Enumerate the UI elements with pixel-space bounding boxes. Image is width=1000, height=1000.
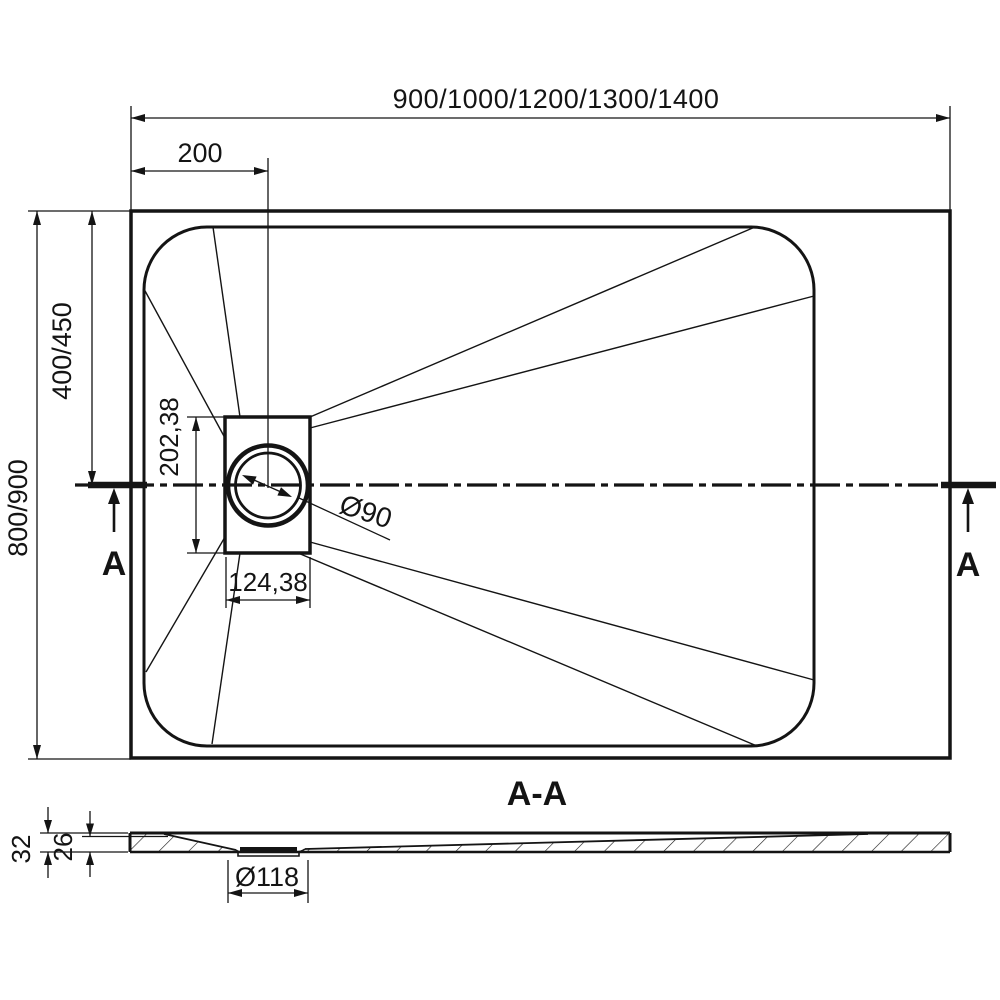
section-drain-plate bbox=[240, 847, 297, 851]
arrowhead bbox=[192, 417, 200, 431]
arrowhead bbox=[131, 114, 145, 122]
drawing-canvas: A A bbox=[0, 0, 1000, 1000]
slope-line bbox=[310, 227, 755, 417]
arrowhead bbox=[296, 596, 310, 604]
section-marker-label-right: A bbox=[956, 546, 981, 584]
arrowhead bbox=[44, 820, 52, 833]
arrowhead bbox=[242, 475, 257, 485]
dim-overall-depth-label: 800/900 bbox=[3, 459, 33, 557]
arrowhead bbox=[936, 114, 950, 122]
arrowhead bbox=[33, 745, 41, 759]
dim-drain-box-width-label: 124,38 bbox=[228, 567, 308, 597]
slope-line bbox=[310, 542, 814, 680]
dim-thickness-26-label: 26 bbox=[48, 833, 78, 862]
slope-line bbox=[213, 227, 240, 417]
dim-drain-box-height-label: 202,38 bbox=[154, 397, 184, 477]
arrowhead bbox=[277, 487, 292, 497]
shower-tray-technical-drawing: A A bbox=[0, 0, 1000, 1000]
slope-line bbox=[298, 553, 757, 746]
section-arrow-left bbox=[108, 488, 120, 504]
dim-drain-diameter-label: Ø90 bbox=[336, 489, 396, 535]
arrowhead bbox=[86, 852, 94, 865]
dim-overall-width-label: 900/1000/1200/1300/1400 bbox=[393, 84, 720, 114]
dim-drain-offset-x-label: 200 bbox=[177, 138, 222, 168]
dim-thickness-32-label: 32 bbox=[6, 835, 36, 864]
arrowhead bbox=[88, 211, 96, 225]
arrowhead bbox=[131, 167, 145, 175]
section-arrow-right bbox=[962, 488, 974, 504]
section-view-title: A-A bbox=[507, 775, 567, 813]
top-view bbox=[75, 211, 996, 758]
slope-line bbox=[310, 296, 814, 428]
section-view bbox=[130, 833, 950, 856]
slope-line bbox=[146, 537, 225, 672]
arrowhead bbox=[86, 824, 94, 837]
dim-outlet-diameter-label: Ø118 bbox=[235, 862, 299, 892]
dim-drain-offset-y-label: 400/450 bbox=[47, 302, 77, 400]
arrowhead bbox=[33, 211, 41, 225]
arrowhead bbox=[192, 539, 200, 553]
dimension-labels-top-view: 900/1000/1200/1300/1400 200 800/900 400/… bbox=[3, 84, 719, 597]
arrowhead bbox=[254, 167, 268, 175]
section-marker-label-left: A bbox=[102, 545, 127, 583]
